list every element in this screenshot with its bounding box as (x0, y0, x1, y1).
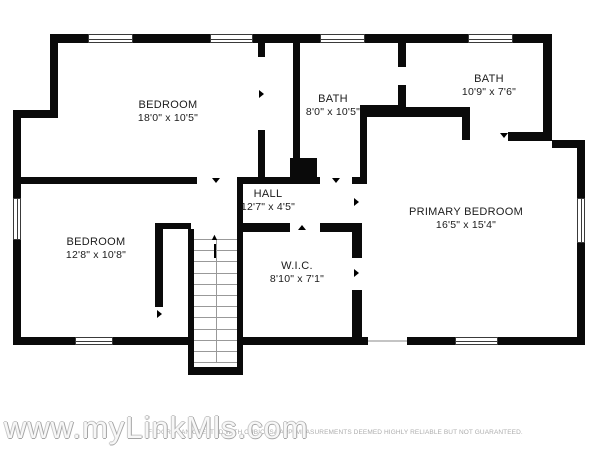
stairs-arrow-stem (214, 244, 216, 258)
wall-wic-east-upper (352, 223, 362, 258)
window (455, 337, 498, 345)
door-marker-icon (259, 90, 264, 98)
wall-stair-bottom (188, 367, 243, 375)
wall-bath2-step (462, 115, 470, 140)
room-dims: 16'5" x 15'4" (409, 219, 523, 232)
window (577, 198, 585, 243)
wall-exterior-bottom-mid (243, 337, 368, 345)
room-name: BATH (306, 93, 360, 106)
room-label-wic: W.I.C. 8'10" x 7'1" (270, 260, 324, 286)
room-name: BATH (462, 73, 516, 86)
room-dims: 10'9" x 7'6" (462, 86, 516, 99)
window (468, 34, 513, 43)
wall-bath2-bottom-east (508, 132, 552, 141)
room-label-bedroom-1: BEDROOM 18'0" x 10'5" (138, 99, 198, 125)
wall-bath-divider-upper (398, 43, 406, 67)
room-dims: 8'0" x 10'5" (306, 106, 360, 119)
door-marker-icon (500, 133, 508, 138)
window (13, 198, 21, 240)
room-name: PRIMARY BEDROOM (409, 206, 523, 219)
window (75, 337, 113, 345)
wall-bedroom1-bottom-west (13, 177, 197, 184)
room-label-hall: HALL 12'7" x 4'5" (241, 188, 295, 214)
room-label-bath-2: BATH 10'9" x 7'6" (462, 73, 516, 99)
window (210, 34, 253, 43)
room-name: W.I.C. (270, 260, 324, 273)
floorplan-screenshot: ▲ BEDROOM 18'0" x 10'5" BATH 8'0" x 10'5… (0, 0, 600, 450)
wall-wic-east-lower (352, 290, 362, 337)
room-label-bath-1: BATH 8'0" x 10'5" (306, 93, 360, 119)
room-dims: 18'0" x 10'5" (138, 112, 198, 125)
room-dims: 12'8" x 10'8" (66, 249, 126, 262)
staircase (194, 239, 237, 363)
watermark-text: www.myLinkMls.com (4, 410, 309, 446)
room-label-primary-bedroom: PRIMARY BEDROOM 16'5" x 15'4" (409, 206, 523, 232)
window (88, 34, 133, 43)
wall-bedroom1-bottom-east (237, 177, 320, 184)
wall-closet-stub-bottom (258, 130, 265, 177)
wall-wic-top-west (237, 223, 290, 232)
wall-opening (368, 340, 407, 342)
room-dims: 12'7" x 4'5" (241, 201, 295, 214)
door-marker-icon (354, 269, 359, 277)
room-name: BEDROOM (66, 236, 126, 249)
door-marker-icon (157, 310, 162, 318)
wall-exterior-left-upper (50, 34, 58, 118)
room-name: BEDROOM (138, 99, 198, 112)
window (320, 34, 365, 43)
wall-exterior-right-upper (543, 34, 552, 140)
wall-duct-block (290, 158, 317, 177)
wall-closet-stub-top (258, 43, 265, 57)
room-name: HALL (241, 188, 295, 201)
wall-bedroom2-east (155, 223, 163, 307)
wall-bath2-bottom-west (398, 107, 470, 117)
room-label-bedroom-2: BEDROOM 12'8" x 10'8" (66, 236, 126, 262)
door-marker-icon (332, 178, 340, 183)
stairs-up-arrow-icon: ▲ (210, 233, 219, 242)
door-marker-icon (212, 178, 220, 183)
door-marker-icon (354, 198, 359, 206)
room-dims: 8'10" x 7'1" (270, 273, 324, 286)
wall-nook-west (360, 110, 367, 184)
door-marker-icon (298, 225, 306, 230)
